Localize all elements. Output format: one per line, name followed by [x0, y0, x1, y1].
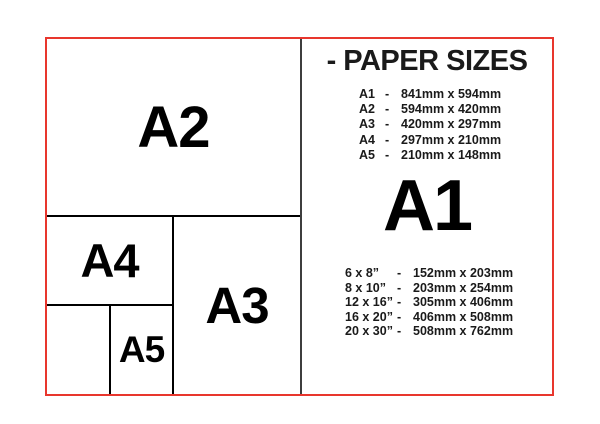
separator-dash: -	[385, 117, 401, 131]
a-series-row: A5 - 210mm x 148mm	[359, 148, 495, 163]
size-name: 12 x 16”	[345, 295, 397, 309]
a-series-row: A4 - 297mm x 210mm	[359, 132, 495, 147]
paper-sizes-sheet: A2 A4 A3 A5 - PAPER SIZES A1 - 841mm x 5…	[45, 37, 554, 396]
size-dims: 841mm x 594mm	[401, 87, 495, 101]
separator-dash: -	[397, 310, 413, 324]
size-dims: 152mm x 203mm	[413, 266, 509, 280]
info-panel: - PAPER SIZES A1 - 841mm x 594mm A2 - 59…	[302, 39, 552, 394]
paper-label-a2: A2	[137, 94, 209, 161]
separator-dash: -	[385, 87, 401, 101]
size-name: 8 x 10”	[345, 281, 397, 295]
size-name: A3	[359, 117, 385, 131]
size-dims: 406mm x 508mm	[413, 310, 509, 324]
paper-box-a5: A5	[111, 306, 172, 394]
inch-series-row: 6 x 8” - 152mm x 203mm	[345, 266, 509, 281]
paper-box-a3: A3	[174, 217, 300, 394]
line-a5-left	[109, 306, 111, 394]
inch-series-row: 12 x 16” - 305mm x 406mm	[345, 295, 509, 310]
size-dims: 594mm x 420mm	[401, 102, 495, 116]
separator-dash: -	[385, 133, 401, 147]
inch-series-row: 8 x 10” - 203mm x 254mm	[345, 281, 509, 296]
separator-dash: -	[397, 324, 413, 338]
page-title: - PAPER SIZES	[302, 45, 552, 78]
paper-box-a2: A2	[47, 39, 300, 215]
a-series-row: A3 - 420mm x 297mm	[359, 117, 495, 132]
size-dims: 203mm x 254mm	[413, 281, 509, 295]
paper-label-a4: A4	[80, 233, 138, 288]
line-a2-bottom	[47, 215, 302, 217]
separator-dash: -	[397, 281, 413, 295]
size-name: A4	[359, 133, 385, 147]
size-name: A5	[359, 148, 385, 162]
size-dims: 305mm x 406mm	[413, 295, 509, 309]
size-name: A1	[359, 87, 385, 101]
size-dims: 297mm x 210mm	[401, 133, 495, 147]
size-dims: 210mm x 148mm	[401, 148, 495, 162]
paper-label-a5: A5	[119, 329, 164, 371]
separator-dash: -	[385, 148, 401, 162]
separator-dash: -	[397, 266, 413, 280]
paper-box-a4: A4	[47, 217, 172, 304]
a-series-row: A1 - 841mm x 594mm	[359, 86, 495, 101]
size-name: A2	[359, 102, 385, 116]
a-series-row: A2 - 594mm x 420mm	[359, 101, 495, 116]
separator-dash: -	[385, 102, 401, 116]
size-dims: 420mm x 297mm	[401, 117, 495, 131]
inch-series-row: 20 x 30” - 508mm x 762mm	[345, 324, 509, 339]
size-dims: 508mm x 762mm	[413, 324, 509, 338]
size-name: 16 x 20”	[345, 310, 397, 324]
inch-series-row: 16 x 20” - 406mm x 508mm	[345, 310, 509, 325]
paper-label-a3: A3	[205, 276, 268, 335]
size-name: 20 x 30”	[345, 324, 397, 338]
size-name: 6 x 8”	[345, 266, 397, 280]
separator-dash: -	[397, 295, 413, 309]
featured-size-label: A1	[302, 170, 552, 242]
inch-series-list: 6 x 8” - 152mm x 203mm 8 x 10” - 203mm x…	[302, 266, 552, 339]
a-series-list: A1 - 841mm x 594mm A2 - 594mm x 420mm A3…	[302, 86, 552, 163]
